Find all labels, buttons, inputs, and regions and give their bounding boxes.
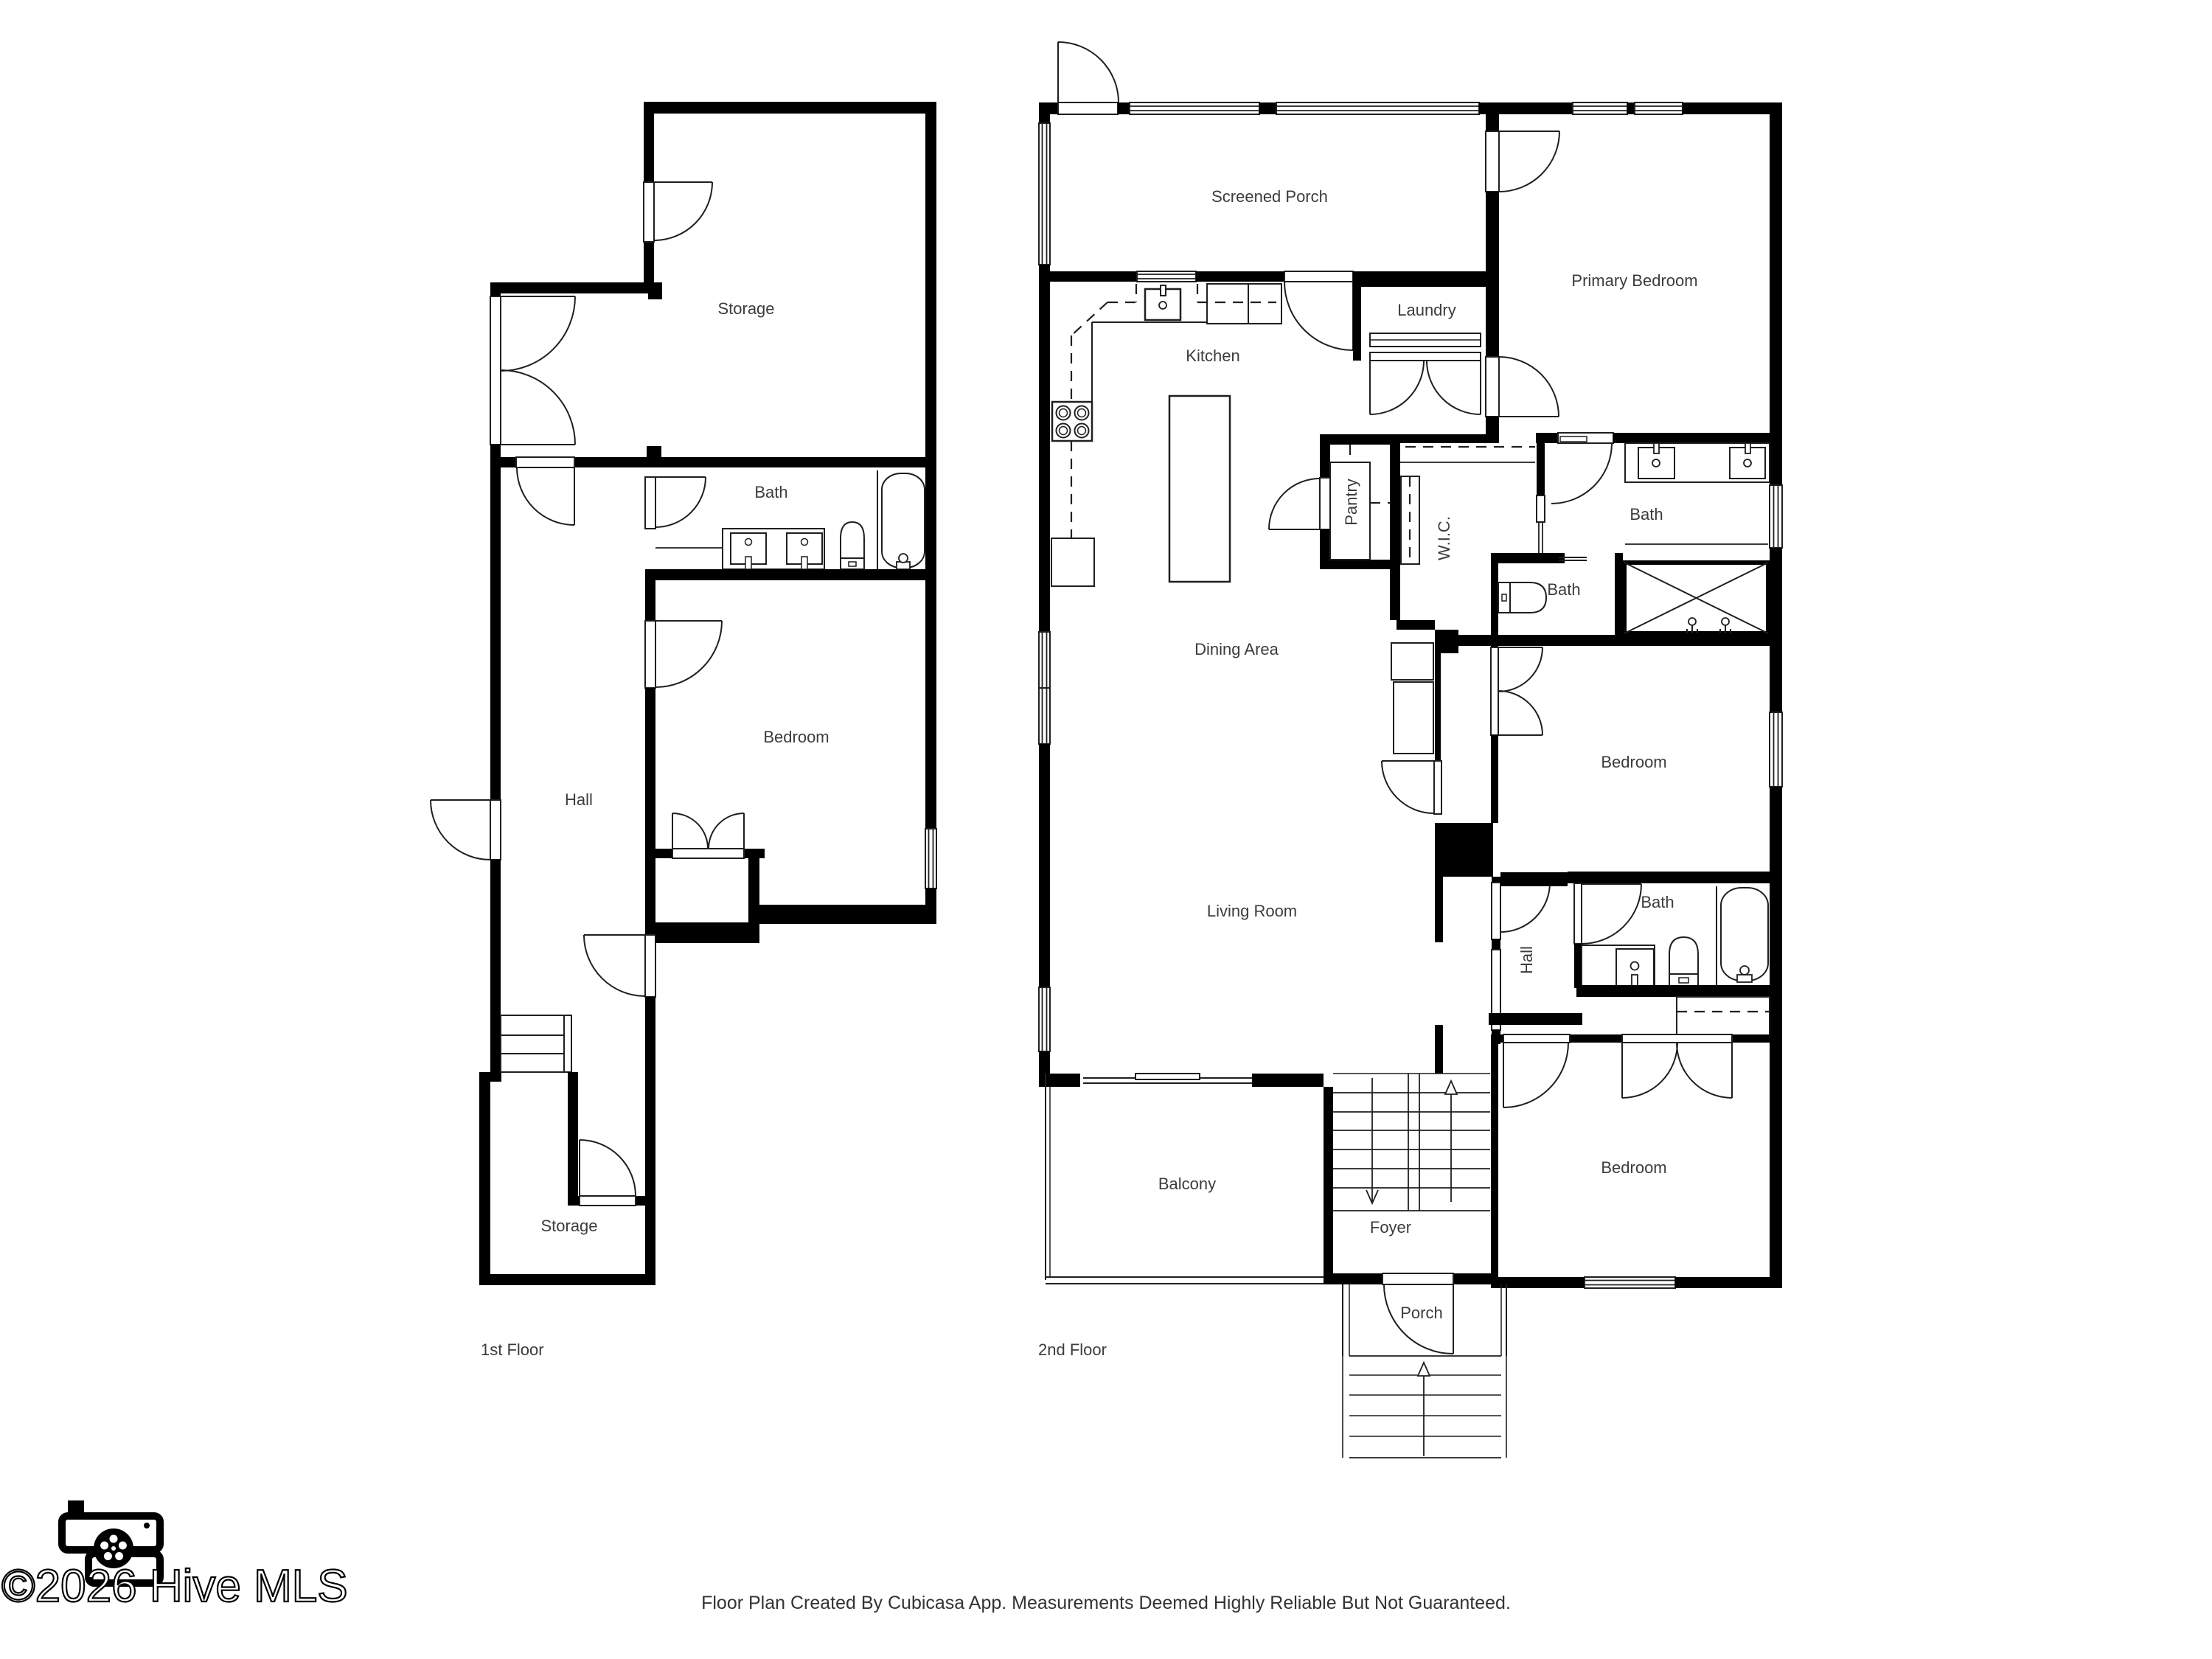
svg-text:Foyer: Foyer bbox=[1370, 1218, 1411, 1237]
svg-text:Bedroom: Bedroom bbox=[1601, 753, 1666, 771]
svg-text:Laundry: Laundry bbox=[1397, 301, 1456, 319]
svg-text:Living Room: Living Room bbox=[1207, 902, 1297, 920]
svg-text:Primary Bedroom: Primary Bedroom bbox=[1571, 271, 1697, 290]
svg-text:Screened Porch: Screened Porch bbox=[1211, 187, 1328, 206]
svg-text:Kitchen: Kitchen bbox=[1186, 347, 1239, 365]
svg-text:Hall: Hall bbox=[1517, 946, 1536, 974]
svg-text:Storage: Storage bbox=[540, 1217, 597, 1235]
svg-text:Bedroom: Bedroom bbox=[1601, 1158, 1666, 1177]
svg-text:Pantry: Pantry bbox=[1342, 479, 1360, 526]
svg-text:W.I.C.: W.I.C. bbox=[1435, 516, 1453, 560]
svg-text:Floor Plan Created By Cubicasa: Floor Plan Created By Cubicasa App. Meas… bbox=[701, 1593, 1511, 1613]
svg-text:Bedroom: Bedroom bbox=[763, 728, 829, 746]
svg-text:Balcony: Balcony bbox=[1158, 1175, 1216, 1193]
svg-text:Bath: Bath bbox=[754, 483, 787, 501]
svg-text:Bath: Bath bbox=[1547, 580, 1580, 599]
svg-text:2nd Floor: 2nd Floor bbox=[1038, 1340, 1107, 1359]
svg-text:Hall: Hall bbox=[565, 790, 593, 809]
svg-text:Porch: Porch bbox=[1400, 1304, 1442, 1322]
svg-text:Dining Area: Dining Area bbox=[1194, 640, 1279, 658]
svg-text:Bath: Bath bbox=[1630, 505, 1663, 524]
svg-text:1st Floor: 1st Floor bbox=[481, 1340, 544, 1359]
svg-text:Storage: Storage bbox=[717, 299, 774, 318]
svg-text:Bath: Bath bbox=[1641, 893, 1674, 911]
svg-text:©2026 Hive MLS: ©2026 Hive MLS bbox=[1, 1561, 348, 1612]
